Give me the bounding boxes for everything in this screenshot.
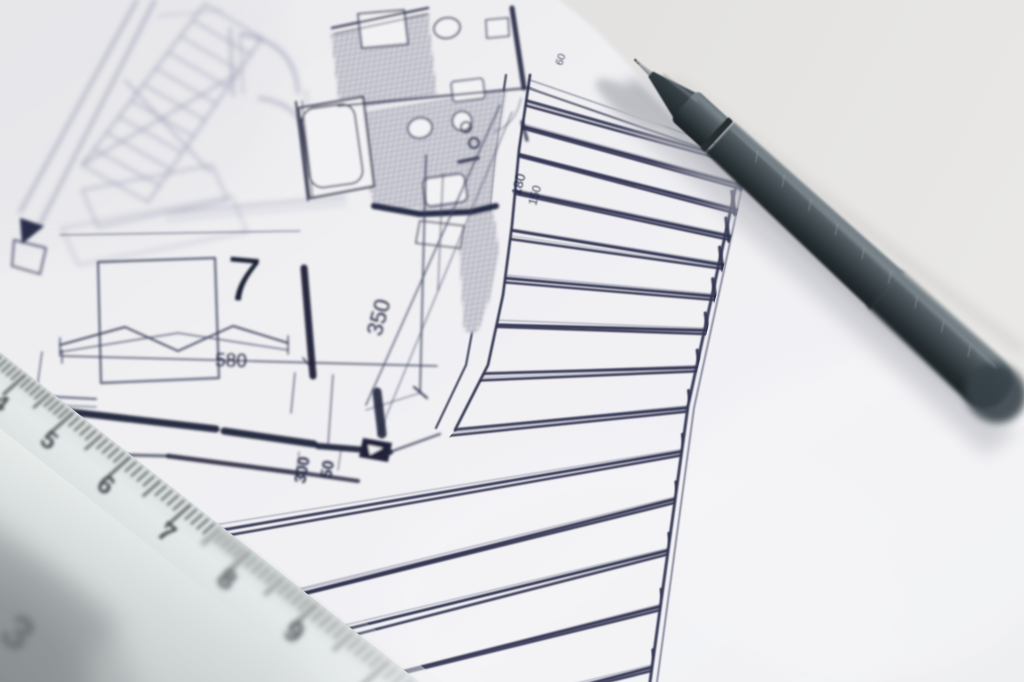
svg-text:7: 7 (223, 244, 263, 316)
svg-text:580: 580 (215, 350, 247, 372)
svg-text:50: 50 (318, 459, 338, 480)
